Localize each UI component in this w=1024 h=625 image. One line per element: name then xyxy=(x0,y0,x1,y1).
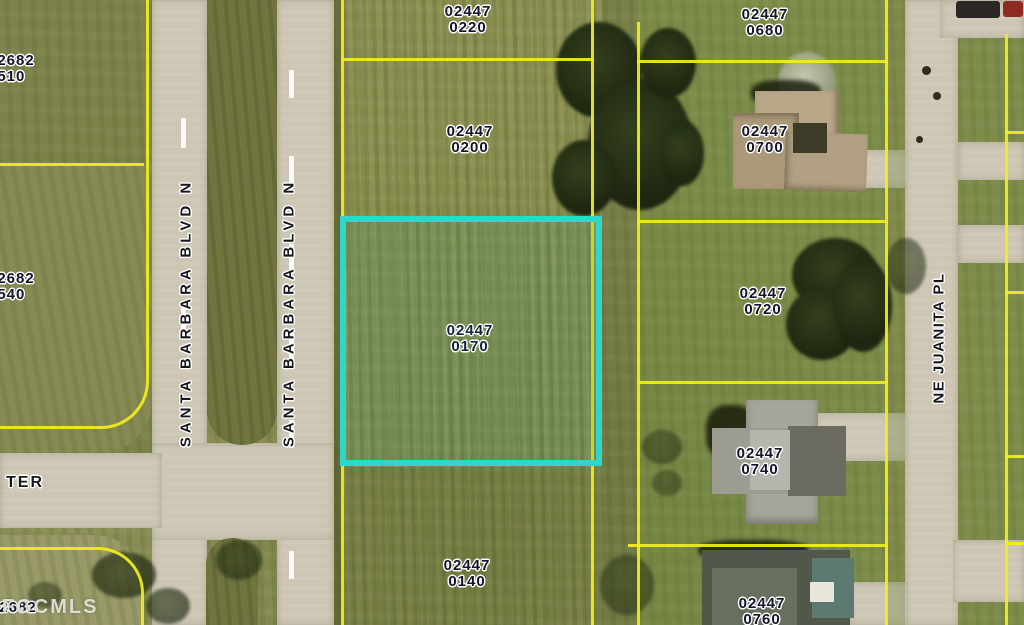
tree-shadow-on-road xyxy=(886,238,926,294)
shrub-bottom-left-2 xyxy=(146,588,190,624)
parcel-number-line1: 02447 xyxy=(447,124,494,140)
parcel-number-line2: 0700 xyxy=(742,140,789,156)
grass-tint-east-edge xyxy=(958,0,1024,625)
parcel-number-line1: 02447 xyxy=(447,323,494,339)
parcel-line-v-east-edge xyxy=(1005,34,1008,625)
parcel-number-line1: 02682 xyxy=(0,271,35,287)
house-0700-shadow-section xyxy=(793,123,827,153)
house-bottom-right-garage-door xyxy=(810,582,834,602)
parcel-number-line1: 02447 xyxy=(444,558,491,574)
parcel-line-v-easement xyxy=(637,22,640,625)
tree-cluster-top-center-3 xyxy=(640,28,696,98)
parcel-line-h-0510-0540 xyxy=(0,163,144,166)
street-label-ne-juanita-pl: NE JUANITA PL xyxy=(931,272,948,403)
parcel-number-line2: 0740 xyxy=(737,462,784,478)
car-dark xyxy=(956,1,1000,18)
street-label-santa-barbara-west: SANTA BARBARA BLVD N xyxy=(178,179,195,447)
street-label-ter: TER xyxy=(6,474,44,492)
parcel-line-tick-east-1 xyxy=(1005,131,1024,134)
parcel-line-h-0220-0200 xyxy=(341,58,594,61)
parcel-number-line2: 0760 xyxy=(739,612,786,625)
parcel-number-line1: 02447 xyxy=(742,124,789,140)
parcel-number-line2: 0220 xyxy=(445,20,492,36)
road-object-dot-1 xyxy=(922,66,931,75)
tree-cluster-top-center-5 xyxy=(660,120,704,186)
parcel-label-02447-0700: 02447 0700 xyxy=(742,124,789,156)
parcel-label-02682-0510: 02682 0510 xyxy=(0,53,35,85)
tree-cluster-top-center-4 xyxy=(552,140,616,216)
lane-dash xyxy=(289,70,294,98)
parcel-number-line1: 02447 xyxy=(737,446,784,462)
road-object-dot-2 xyxy=(933,92,941,100)
grass-tint-bottom-center xyxy=(345,467,602,625)
parcel-label-02447-0680: 02447 0680 xyxy=(742,7,789,39)
parcel-label-02447-0740: 02447 0740 xyxy=(737,446,784,478)
median-upper xyxy=(207,0,277,445)
parcel-number-line1: 02447 xyxy=(445,4,492,20)
driveway-east-bottom xyxy=(953,540,1024,602)
tree-cluster-0720-3 xyxy=(834,258,892,352)
parcel-number-line2: 0140 xyxy=(444,574,491,590)
car-red xyxy=(1003,1,1023,17)
parcel-line-tick-east-2 xyxy=(1005,291,1024,294)
parcel-label-02447-0220: 02447 0220 xyxy=(445,4,492,36)
driveway-east-mid xyxy=(958,225,1024,263)
parcel-number-line1: 02447 xyxy=(740,286,787,302)
lane-dash xyxy=(289,551,294,579)
aerial-map-canvas[interactable]: 02682 0510 02682 0540 02447 0220 02447 0… xyxy=(0,0,1024,625)
parcel-number-line1: 02447 xyxy=(742,7,789,23)
driveway-east-top xyxy=(958,142,1024,180)
parcel-line-tick-east-3 xyxy=(1005,455,1024,458)
parcel-label-02447-0200: 02447 0200 xyxy=(447,124,494,156)
parcel-number-line1: 02682 xyxy=(0,53,35,69)
parcel-label-02447-0140: 02447 0140 xyxy=(444,558,491,590)
parcel-label-02447-0170: 02447 0170 xyxy=(447,323,494,355)
lane-dash xyxy=(181,118,186,148)
street-label-santa-barbara-east: SANTA BARBARA BLVD N xyxy=(281,179,298,447)
road-object-dot-3 xyxy=(916,136,923,143)
parcel-line-h-0700-0720 xyxy=(637,220,888,223)
shrub-0740-yard-2 xyxy=(652,470,682,496)
shrub-median xyxy=(216,540,262,580)
parcel-line-h-0720-0740 xyxy=(637,381,888,384)
parcel-line-h-0740-south xyxy=(628,544,888,547)
parcel-number-line2: 0200 xyxy=(447,140,494,156)
parcel-label-02682-0540: 02682 0540 xyxy=(0,271,35,303)
parcel-line-v-west-of-juanita xyxy=(885,0,888,625)
parcel-number-line1: 02447 xyxy=(739,596,786,612)
parcel-label-02447-0760-clipped: 02447 0760 xyxy=(739,596,786,625)
parcel-number-line2: 0170 xyxy=(447,339,494,355)
parcel-label-02447-0720: 02447 0720 xyxy=(740,286,787,318)
house-0740-roof-dark-face xyxy=(788,426,846,496)
parcel-line-h-0680-0700 xyxy=(637,60,888,63)
parcel-number-line2: 0540 xyxy=(0,287,35,303)
shrub-0740-yard-1 xyxy=(642,430,682,464)
parcel-line-tick-east-4 xyxy=(1005,542,1024,545)
parcel-number-line2: 0510 xyxy=(0,69,35,85)
parcel-number-line2: 0720 xyxy=(740,302,787,318)
parcel-number-line2: 0680 xyxy=(742,23,789,39)
mls-watermark: FGCMLS xyxy=(2,596,98,619)
road-intersection xyxy=(152,443,334,540)
tree-bottom-center xyxy=(600,555,654,615)
